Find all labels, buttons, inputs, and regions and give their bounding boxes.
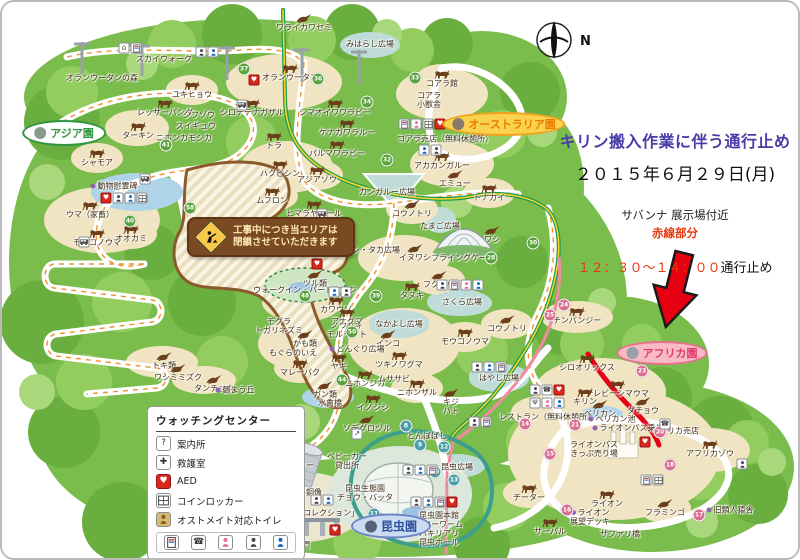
spot-dot-icon bbox=[216, 388, 221, 393]
label-text: ユキヒョウ bbox=[172, 90, 212, 99]
aed-icon: ♥ bbox=[554, 385, 565, 396]
area-label-australia: オーストラリア園 bbox=[442, 112, 565, 136]
label-text: チーター bbox=[513, 493, 545, 502]
animal-label: パルマワラビー bbox=[309, 138, 365, 158]
wheelchair-icon bbox=[329, 287, 340, 298]
bird-label: トキ類 bbox=[152, 350, 176, 370]
bird-label: ダチョウ bbox=[627, 395, 659, 415]
animal-label: ヤギ bbox=[330, 351, 348, 371]
area-australia-icon bbox=[452, 118, 464, 130]
legend-item-label: AED bbox=[177, 476, 197, 487]
animal-silhouette-icon bbox=[520, 482, 538, 494]
spot-dot-icon bbox=[330, 347, 335, 352]
animal-silhouette-icon bbox=[578, 352, 596, 364]
info-icon: ? bbox=[156, 436, 171, 451]
spot-dot-icon bbox=[589, 417, 594, 422]
animal-silhouette-icon bbox=[308, 164, 326, 176]
facility-label: サファリ橋 bbox=[600, 530, 640, 539]
route-marker: 50 bbox=[346, 326, 359, 339]
area-label-text: オーストラリア園 bbox=[468, 116, 555, 132]
label-text: ツル類 bbox=[303, 279, 327, 288]
animal-silhouette-icon bbox=[608, 378, 626, 390]
aed-icon: ♥ bbox=[156, 474, 171, 489]
route-marker: 12 bbox=[438, 441, 451, 454]
notice-red-line-note: 赤線部分 bbox=[554, 225, 796, 241]
animal-label: キリン bbox=[573, 386, 597, 406]
label-text: 鶴まう丘 bbox=[216, 386, 255, 395]
bird-silhouette-icon bbox=[296, 328, 314, 340]
label-text: かも類 bbox=[293, 339, 317, 348]
facility-icon-cluster: Ψ bbox=[530, 398, 565, 409]
animal-label: トラ bbox=[265, 130, 283, 150]
animal-label: シロテテナガザル bbox=[220, 97, 284, 117]
map-text-label: ペリカン池 bbox=[589, 415, 636, 424]
animal-label: ムフロン bbox=[256, 185, 288, 205]
bird-silhouette-icon bbox=[406, 242, 424, 254]
label-text: キリン bbox=[573, 397, 597, 406]
facility-label: とんぼばし bbox=[407, 432, 447, 441]
area-label-text: アフリカ園 bbox=[643, 345, 698, 361]
notice-time: １２：３０～１４：００通行止め bbox=[554, 257, 796, 276]
facility-icon-cluster bbox=[472, 362, 507, 373]
map-text-label: ライオンバスきっぷ売り場 bbox=[570, 440, 618, 458]
ostomate-icon bbox=[156, 512, 171, 527]
label-text: さくら広場 bbox=[442, 298, 482, 307]
locker-icon bbox=[156, 493, 171, 508]
toilet-icon bbox=[411, 497, 422, 508]
bird-silhouette-icon bbox=[169, 362, 187, 374]
notice-date: ２０１５年６月２９日(月) bbox=[554, 160, 796, 185]
phone-icon: ☎ bbox=[191, 535, 206, 550]
label-text: キジハト bbox=[443, 398, 459, 416]
label-text: レストラン（無料休憩所） bbox=[499, 413, 595, 422]
label-text: ケナガワラルー bbox=[319, 128, 375, 137]
label-text: サーバル bbox=[534, 527, 566, 536]
area-label-text: アジア園 bbox=[50, 125, 94, 141]
label-text: チンパンジー bbox=[553, 316, 601, 325]
label-text: 動物慰霊碑 bbox=[91, 182, 138, 191]
toilet-icon bbox=[530, 385, 541, 396]
facility-label: オランウータンの森 bbox=[66, 74, 138, 83]
map-text-label: 昆虫広場 bbox=[441, 463, 473, 472]
label-text: ライオン展望デッキ bbox=[570, 508, 610, 526]
label-text: イヌワシ bbox=[399, 253, 431, 262]
label-text: ガン類 bbox=[313, 390, 337, 399]
area-africa-icon bbox=[627, 347, 639, 359]
legend-item-locker: コインロッカー bbox=[156, 493, 296, 508]
animal-label: シロオリックス bbox=[559, 352, 615, 372]
facility-icon-cluster: ♥ bbox=[399, 119, 446, 130]
animal-label: ニホンザル bbox=[397, 377, 437, 397]
route-marker: 16 bbox=[561, 504, 574, 517]
legend-watching-center: ウォッチングセンター ?案内所✚救護室♥AEDコインロッカーオストメイト対応トイ… bbox=[147, 406, 305, 560]
animal-label: アジアゾウ bbox=[297, 164, 337, 184]
map-text-label: 昆虫生態園チョウ・バッタ bbox=[337, 484, 393, 502]
label-text: ライオン bbox=[591, 499, 623, 508]
area-label-text: 昆虫園 bbox=[381, 518, 417, 535]
plaza-label: なかよし広場 bbox=[375, 320, 423, 329]
label-text: トナカイ bbox=[473, 193, 505, 202]
facility-icon-cluster bbox=[140, 174, 151, 185]
animal-label: モウコノウマ bbox=[441, 326, 489, 346]
vending-icon bbox=[164, 535, 179, 550]
animal-silhouette-icon bbox=[183, 79, 201, 91]
area-asia-icon bbox=[34, 127, 46, 139]
map-text-label: スイギュウ bbox=[176, 122, 216, 131]
animal-label: サーバル bbox=[534, 516, 566, 536]
route-marker: 14 bbox=[519, 418, 532, 431]
wheelchair-icon bbox=[323, 495, 334, 506]
map-overlay: キリン搬入作業に伴う通行止め ２０１５年６月２９日(月) サバンナ 展示場付近 … bbox=[2, 2, 800, 560]
animal-label: アナグマ bbox=[331, 306, 363, 326]
label-text: トキ類 bbox=[152, 361, 176, 370]
label-text: コアラ館 bbox=[426, 79, 458, 88]
route-marker: 33 bbox=[409, 72, 422, 85]
label-text: ペリカン池 bbox=[589, 415, 636, 424]
facility-icon-cluster bbox=[419, 145, 442, 156]
vending-icon bbox=[481, 417, 492, 428]
map-text-label: ベビーカー貸出所 bbox=[327, 452, 367, 470]
animal-silhouette-icon bbox=[88, 227, 106, 239]
label-text: モグラトガリネズミ bbox=[255, 317, 303, 335]
bird-label: エミュー bbox=[439, 168, 471, 188]
facility-icon-cluster: ♥ bbox=[312, 259, 323, 270]
label-text: ツキノワグマ bbox=[375, 360, 422, 369]
bird-label: かも類 bbox=[293, 328, 317, 348]
label-text: ムササビ bbox=[378, 375, 410, 384]
animal-silhouette-icon bbox=[271, 158, 289, 170]
animal-silhouette-icon bbox=[265, 130, 283, 142]
bird-silhouette-icon bbox=[306, 268, 324, 280]
facility-icon-cluster bbox=[329, 287, 352, 298]
animal-silhouette-icon bbox=[390, 349, 408, 361]
route-marker: 40 bbox=[124, 215, 137, 228]
animal-silhouette-icon bbox=[81, 199, 99, 211]
wheelchair-icon bbox=[125, 193, 136, 204]
facility-icon-cluster bbox=[196, 47, 219, 58]
map-text-label: カンガルー広場 bbox=[359, 188, 415, 197]
area-insect-icon bbox=[365, 520, 377, 532]
legend-items: ?案内所✚救護室♥AEDコインロッカーオストメイト対応トイレ bbox=[156, 436, 296, 527]
notice-time-range: １２：３０～１４：００ bbox=[577, 261, 720, 276]
animal-label: チーター bbox=[513, 482, 545, 502]
route-marker: 32 bbox=[381, 154, 394, 167]
bird-label: ワライカワセミ bbox=[276, 12, 332, 32]
animal-label: ターキン bbox=[122, 120, 154, 140]
bird-silhouette-icon bbox=[446, 168, 464, 180]
animal-label: コアラ館 bbox=[426, 68, 458, 88]
plaza-label: さくら広場 bbox=[442, 298, 482, 307]
legend-item-label: コインロッカー bbox=[177, 494, 244, 508]
animal-silhouette-icon bbox=[291, 357, 309, 369]
compass-n-label: N bbox=[580, 34, 591, 49]
bird-label: ツル類 bbox=[303, 268, 327, 288]
label-text: コウノトリ bbox=[392, 209, 432, 218]
notice-title: キリン搬入作業に伴う通行止め bbox=[554, 128, 796, 152]
bird-label: ワシ bbox=[483, 224, 501, 244]
aed-icon: ♥ bbox=[447, 497, 458, 508]
toilet-icon bbox=[246, 535, 261, 550]
label-text: とんぼばし bbox=[407, 432, 447, 441]
aed-icon: ♥ bbox=[312, 259, 323, 270]
toilet-icon bbox=[431, 145, 442, 156]
aed-icon: ♥ bbox=[249, 75, 260, 86]
label-text: レッサーパンダ bbox=[137, 108, 193, 117]
toilet-icon bbox=[469, 417, 480, 428]
animal-silhouette-icon bbox=[328, 138, 346, 150]
label-text: ライオンバスきっぷ売り場 bbox=[570, 440, 618, 458]
phone-icon: ☎ bbox=[660, 419, 671, 430]
label-text: ニホンジカ bbox=[345, 379, 385, 388]
label-text: トラ bbox=[266, 141, 282, 150]
map-text-label: シフゾウ bbox=[183, 111, 215, 120]
label-text: コアラ売店（無料休憩所） bbox=[397, 135, 493, 144]
label-text: アカカンガルー bbox=[414, 161, 470, 170]
route-marker: 44 bbox=[336, 374, 349, 387]
facility-icon-cluster: ⌂ bbox=[119, 43, 142, 54]
legend-item-firstaid: ✚救護室 bbox=[156, 455, 296, 470]
animal-silhouette-icon bbox=[129, 120, 147, 132]
facility-icon-cluster: ♥ bbox=[640, 437, 651, 448]
label-text: ソデグロヅル bbox=[343, 424, 391, 433]
label-text: 旧類人猿舎 bbox=[707, 506, 754, 515]
facility-icon-cluster: ♥ bbox=[330, 525, 341, 536]
notice-location: サバンナ 展示場付近 bbox=[554, 207, 796, 223]
bus-icon bbox=[79, 237, 90, 248]
label-text: たまご広場 bbox=[420, 222, 460, 231]
animal-silhouette-icon bbox=[364, 392, 382, 404]
bird-label: キジハト bbox=[442, 387, 460, 416]
route-marker: 23 bbox=[636, 365, 649, 378]
spot-dot-icon bbox=[593, 426, 598, 431]
animal-silhouette-icon bbox=[408, 377, 426, 389]
facility-icon-cluster: ♥ bbox=[101, 193, 148, 204]
label-text: カンガルー広場 bbox=[359, 188, 415, 197]
animal-silhouette-icon bbox=[456, 326, 474, 338]
aed-icon: ♥ bbox=[330, 525, 341, 536]
animal-label: シャモア bbox=[81, 147, 113, 167]
animal-label: ツキノワグマ bbox=[375, 349, 422, 369]
locker-icon bbox=[137, 193, 148, 204]
label-text: ハクビシン bbox=[260, 169, 300, 178]
compass-north: N bbox=[530, 14, 600, 70]
label-text: ワシミミズク bbox=[154, 373, 202, 382]
route-marker: 39 bbox=[370, 290, 383, 303]
facility-icon-cluster bbox=[737, 459, 748, 470]
baby-icon bbox=[411, 119, 422, 130]
wheelchair-icon bbox=[484, 362, 495, 373]
label-text: ニホンザル bbox=[397, 388, 437, 397]
route-marker: 36 bbox=[312, 73, 325, 86]
wheelchair-icon bbox=[473, 280, 484, 291]
animal-label: グレビーシマウマ bbox=[585, 378, 649, 398]
bird-silhouette-icon bbox=[379, 328, 397, 340]
bird-label: タンチョウ bbox=[194, 373, 234, 393]
route-marker: 48 bbox=[299, 290, 312, 303]
animal-silhouette-icon bbox=[541, 516, 559, 528]
animal-silhouette-icon bbox=[281, 62, 299, 74]
bird-silhouette-icon bbox=[656, 497, 674, 509]
baby-icon bbox=[218, 535, 233, 550]
map-text-label: 動物慰霊碑 bbox=[91, 182, 138, 191]
plaza-label: はやし広場 bbox=[479, 374, 519, 383]
route-marker: 8 bbox=[400, 420, 413, 433]
facility-label: コアラ売店（無料休憩所） bbox=[397, 135, 493, 144]
wheelchair-icon bbox=[419, 145, 430, 156]
bird-silhouette-icon bbox=[591, 398, 609, 410]
route-marker: 18 bbox=[664, 459, 677, 472]
bird-silhouette-icon bbox=[634, 395, 652, 407]
label-text: イノシシ bbox=[357, 403, 389, 412]
bus-icon bbox=[140, 174, 151, 185]
animal-silhouette-icon bbox=[263, 185, 281, 197]
animal-silhouette-icon bbox=[568, 305, 586, 317]
label-text: タンチョウ bbox=[194, 384, 234, 393]
vending-icon bbox=[399, 119, 410, 130]
toilet-icon bbox=[437, 280, 448, 291]
facility-icon-cluster: ♥ bbox=[249, 75, 260, 86]
legend-item-aed: ♥AED bbox=[156, 474, 296, 489]
wheelchair-icon bbox=[273, 535, 288, 550]
label-text: インコ bbox=[376, 339, 400, 348]
bird-silhouette-icon bbox=[498, 313, 516, 325]
area-label-asia: アジア園 bbox=[22, 120, 106, 146]
facility-icon-cluster: ↗ bbox=[352, 429, 363, 440]
zoo-map-page: キリン搬入作業に伴う通行止め ２０１５年６月２９日(月) サバンナ 展示場付近 … bbox=[0, 0, 800, 560]
animal-silhouette-icon bbox=[701, 438, 719, 450]
bus-icon bbox=[237, 100, 248, 111]
route-marker: 13 bbox=[448, 474, 461, 487]
bird-silhouette-icon bbox=[483, 224, 501, 236]
label-text: フラミンゴ bbox=[645, 508, 685, 517]
slope-icon: ↗ bbox=[352, 429, 363, 440]
toilet-icon bbox=[737, 459, 748, 470]
legend-item-label: オストメイト対応トイレ bbox=[177, 513, 282, 527]
bird-silhouette-icon bbox=[358, 413, 376, 425]
animal-label: トナカイ bbox=[473, 182, 505, 202]
toilet-icon bbox=[472, 362, 483, 373]
facility-icon-cluster: ☎♥ bbox=[530, 385, 565, 396]
bird-silhouette-icon bbox=[295, 12, 313, 24]
route-marker: 58 bbox=[184, 202, 197, 215]
label-text: ウマ（家畜） bbox=[66, 210, 114, 219]
animal-silhouette-icon bbox=[356, 368, 374, 380]
restaurant-icon: Ψ bbox=[530, 398, 541, 409]
vending-icon bbox=[496, 362, 507, 373]
animal-silhouette-icon bbox=[156, 97, 174, 109]
label-text: パルマワラビー bbox=[309, 149, 365, 158]
toilet-icon bbox=[311, 495, 322, 506]
route-marker: 9 bbox=[414, 439, 427, 452]
facility-icon-cluster: ♥ bbox=[411, 497, 458, 508]
animal-label: ニホンジカ bbox=[345, 368, 385, 388]
bird-label: フラミンゴ bbox=[645, 497, 685, 517]
toilet-icon bbox=[113, 193, 124, 204]
route-marker: 41 bbox=[160, 139, 173, 152]
animal-silhouette-icon bbox=[338, 306, 356, 318]
vending-icon bbox=[435, 497, 446, 508]
label-text: アジアゾウ bbox=[297, 175, 337, 184]
animal-label: イノシシ bbox=[357, 392, 389, 412]
animal-label: ヒマラヤタール bbox=[286, 198, 342, 218]
legend-item-label: 救護室 bbox=[177, 456, 206, 470]
label-text: ワシ bbox=[484, 235, 500, 244]
baby-icon bbox=[542, 398, 553, 409]
label-text: はやし広場 bbox=[479, 374, 519, 383]
wheelchair-icon bbox=[415, 465, 426, 476]
route-marker: 17 bbox=[693, 509, 706, 522]
label-text: スイギュウ bbox=[176, 122, 216, 131]
label-text: ワライカワセミ bbox=[276, 23, 332, 32]
label-text: もぐらのいえ bbox=[269, 349, 317, 358]
bird-label: コウノトリ bbox=[487, 313, 527, 333]
legend-footer-icons: ☎ bbox=[156, 532, 296, 553]
map-text-label: ムササビ bbox=[378, 375, 410, 384]
toilet-icon bbox=[341, 287, 352, 298]
label-text: オオカミ bbox=[115, 234, 147, 243]
legend-item-ostomate: オストメイト対応トイレ bbox=[156, 512, 296, 527]
bird-silhouette-icon bbox=[205, 373, 223, 385]
route-marker: 34 bbox=[361, 96, 374, 109]
label-text: シロテテナガザル bbox=[220, 108, 284, 117]
label-text: どんぐり広場 bbox=[330, 345, 385, 354]
animal-label: マレーバク bbox=[280, 357, 320, 377]
route-marker: 30 bbox=[527, 237, 540, 250]
bird-label: ソデグロヅル bbox=[343, 413, 391, 433]
animal-label: タヌキ bbox=[400, 280, 424, 300]
label-text: 昆虫生態園チョウ・バッタ bbox=[337, 484, 393, 502]
map-text-label: もぐらのいえ bbox=[269, 349, 317, 358]
construction-text: 工事中につき当エリアは 閉鎖させていただきます bbox=[233, 225, 338, 249]
label-text: エミュー bbox=[439, 179, 471, 188]
facility-label: 水禽橋 bbox=[318, 399, 342, 408]
bird-label: ガン類 bbox=[313, 379, 337, 399]
animal-silhouette-icon bbox=[480, 182, 498, 194]
aed-icon: ♥ bbox=[101, 193, 112, 204]
facility-icon-cluster bbox=[469, 417, 492, 428]
map-text-label: コアラ小獣舎 bbox=[417, 91, 441, 109]
map-text-label: たまご広場 bbox=[420, 222, 460, 231]
spot-dot-icon bbox=[91, 184, 96, 189]
label-text: コアラ小獣舎 bbox=[417, 91, 441, 109]
vending-icon bbox=[641, 475, 652, 486]
label-text: スカイウォーク bbox=[136, 55, 192, 64]
map-text-label: どんぐり広場 bbox=[330, 345, 385, 354]
animal-silhouette-icon bbox=[598, 488, 616, 500]
area-label-africa: アフリカ園 bbox=[617, 341, 708, 365]
label-text: シマオイワワラビー bbox=[299, 108, 371, 117]
label-text: 昆虫広場 bbox=[441, 463, 473, 472]
label-text: ベビーカー貸出所 bbox=[327, 452, 367, 470]
locker-icon bbox=[653, 475, 664, 486]
animal-silhouette-icon bbox=[330, 351, 348, 363]
map-text-label: 鶴まう丘 bbox=[216, 386, 255, 395]
label-text: オランウータンの森 bbox=[66, 74, 138, 83]
firstaid-icon: ✚ bbox=[156, 455, 171, 470]
construction-notice: 工事中につき当エリアは 閉鎖させていただきます bbox=[187, 217, 355, 257]
label-text: ムフロン bbox=[256, 196, 288, 205]
map-text-label: 旧類人猿舎 bbox=[707, 506, 754, 515]
facility-label: スカイウォーク bbox=[136, 55, 192, 64]
bird-label: インコ bbox=[376, 328, 400, 348]
bird-silhouette-icon bbox=[155, 350, 173, 362]
legend-title: ウォッチングセンター bbox=[156, 413, 296, 432]
animal-silhouette-icon bbox=[326, 97, 344, 109]
label-text: なかよし広場 bbox=[375, 320, 423, 329]
label-text: サファリ橋 bbox=[600, 530, 640, 539]
vending-icon bbox=[131, 43, 142, 54]
spot-dot-icon bbox=[707, 508, 712, 513]
